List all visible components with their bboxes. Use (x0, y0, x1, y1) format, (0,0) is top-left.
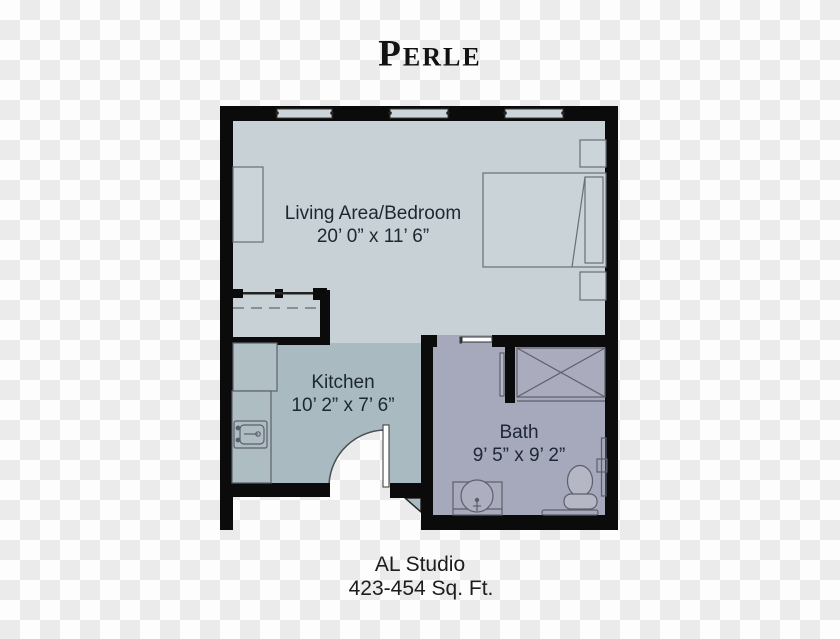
unit-type-label: AL Studio (375, 553, 465, 577)
kitchen-dimensions: 10’ 2” x 7’ 6” (291, 395, 394, 417)
bath-dimensions: 9’ 5” x 9’ 2” (473, 445, 566, 467)
kitchen-counter (232, 391, 271, 483)
kitchen-label: Kitchen (311, 372, 374, 394)
bath-door-leaf (462, 337, 492, 342)
wall-bath-top-stub (421, 335, 437, 347)
closet-track-stub-right (313, 288, 327, 300)
kitchen-fixtures (232, 343, 277, 483)
nightstand-bottom-symbol (580, 272, 606, 300)
pillow-symbol (585, 177, 603, 263)
shower-symbol (517, 348, 605, 401)
unit-area-label: 423-454 Sq. Ft. (349, 577, 494, 601)
wall-kitchen-bottom (220, 483, 330, 497)
bath-label: Bath (499, 422, 538, 444)
entry-door-leaf (383, 425, 389, 487)
closet-track-stub-left (230, 289, 243, 298)
window-3 (505, 109, 563, 118)
wall-bath-left (421, 335, 433, 530)
window-2 (390, 109, 448, 118)
wall-bath-top (492, 335, 618, 347)
bath-vanity-symbol (453, 480, 502, 515)
floor-plan-page: Perle Living Area/Bedroom 20’ 0” x 11’ 6… (0, 0, 840, 639)
bath-door (460, 337, 493, 344)
floor-plan-svg (0, 0, 840, 639)
fridge-symbol (233, 343, 277, 391)
bed-symbol (483, 173, 606, 267)
closet-sliding-track (243, 292, 313, 295)
entry-chamfer (405, 498, 421, 512)
shower-panel (500, 353, 504, 396)
living-area-dimensions: 20’ 0” x 11’ 6” (317, 226, 429, 248)
nightstand-top-symbol (580, 140, 606, 167)
wall-shower-partition (505, 347, 515, 403)
living-area-label: Living Area/Bedroom (285, 203, 461, 225)
window-1 (277, 109, 332, 118)
windows (275, 109, 565, 118)
plan-title: Perle (378, 34, 481, 77)
wall-left (220, 106, 233, 530)
wall-bath-bottom (421, 515, 618, 530)
wardrobe-symbol (233, 167, 263, 242)
